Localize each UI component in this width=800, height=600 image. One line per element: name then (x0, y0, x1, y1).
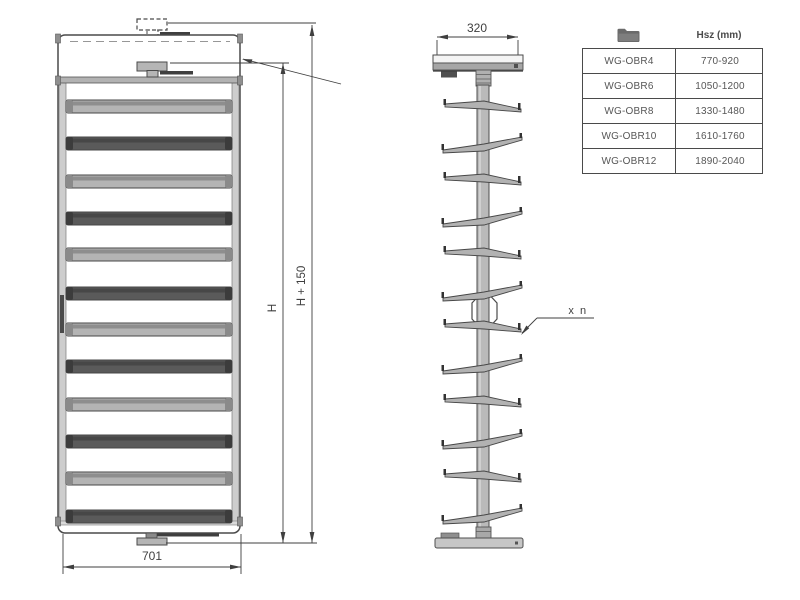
front-right-tube (232, 82, 239, 523)
front-rung-4 (66, 212, 232, 225)
front-rung-6 (66, 287, 232, 300)
front-rung-11 (66, 472, 232, 485)
front-rung-8 (66, 360, 232, 373)
technical-drawing-page: 701 H H + 150 320 (0, 0, 800, 600)
size-table-grid: WG-OBR4 770-920 WG-OBR6 1050-1200 WG-OBR… (582, 48, 763, 174)
table-row: WG-OBR10 1610-1760 (583, 124, 762, 149)
front-rung-9 (66, 398, 232, 411)
front-rung-10 (66, 435, 232, 448)
table-row: WG-OBR4 770-920 (583, 49, 762, 74)
table-row: WG-OBR12 1890-2040 (583, 149, 762, 174)
folder-icon (617, 28, 640, 43)
front-top-rail (59, 77, 239, 83)
hsz-cell: 1610-1760 (676, 124, 764, 148)
hsz-cell: 1050-1200 (676, 74, 764, 98)
size-table: Hsz (mm) WG-OBR4 770-920 WG-OBR6 1050-12… (582, 22, 763, 174)
front-rung-5 (66, 248, 232, 261)
repeat-label: x n (568, 305, 587, 317)
side-bottom-collar (476, 527, 491, 538)
model-column-header (582, 28, 675, 43)
front-rung-2 (66, 137, 232, 150)
model-cell: WG-OBR8 (583, 99, 676, 123)
dim-H-label: H (265, 304, 279, 313)
table-row: WG-OBR8 1330-1480 (583, 99, 762, 124)
model-cell: WG-OBR12 (583, 149, 676, 173)
front-rung-3 (66, 175, 232, 188)
hsz-cell: 770-920 (676, 49, 764, 73)
side-view: 320 (433, 21, 594, 548)
bracket-arm-top (160, 32, 190, 35)
hsz-cell: 1890-2040 (676, 149, 764, 173)
wall-anchor-mark (60, 295, 64, 333)
front-rung-7 (66, 323, 232, 336)
table-row: WG-OBR6 1050-1200 (583, 74, 762, 99)
model-cell: WG-OBR6 (583, 74, 676, 98)
dim-701-label: 701 (142, 549, 162, 563)
dim-H150-label: H + 150 (296, 266, 308, 307)
side-post-connector (476, 70, 491, 86)
dim-320-label: 320 (467, 21, 487, 35)
model-cell: WG-OBR4 (583, 49, 676, 73)
model-cell: WG-OBR10 (583, 124, 676, 148)
mounting-bracket-top-dashed (137, 19, 190, 36)
hsz-column-header: Hsz (mm) (675, 30, 763, 41)
repeat-callout: x n (521, 305, 594, 335)
front-view: 701 H H + 150 (56, 19, 342, 574)
top-corner-leader-line (243, 59, 341, 84)
size-table-header: Hsz (mm) (582, 22, 763, 48)
side-top-bracket (441, 72, 457, 78)
front-rung-1 (66, 100, 232, 113)
front-rung-12 (66, 510, 232, 523)
hsz-cell: 1330-1480 (676, 99, 764, 123)
